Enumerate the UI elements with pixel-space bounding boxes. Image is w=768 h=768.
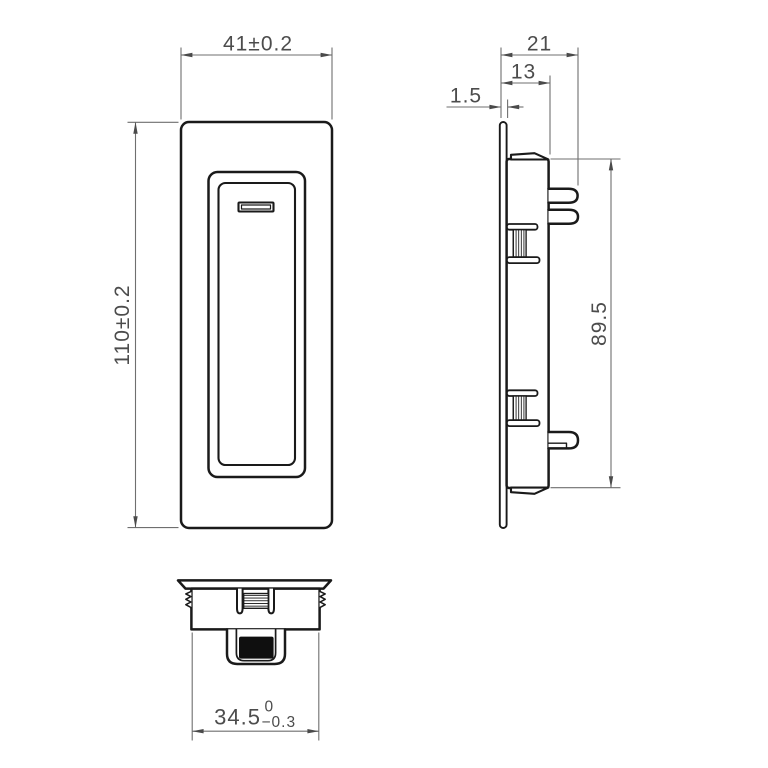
recess-inner-outline	[219, 183, 296, 465]
technical-drawing: 41±0.2 110±0.2 21 13 1.5	[0, 0, 768, 768]
spring-clip-bottom-upper-arm	[507, 390, 538, 396]
dim-overall-depth-label: 21	[527, 33, 552, 56]
spring-clip-bottom-ribs	[513, 396, 526, 420]
channel-left	[237, 589, 243, 614]
dim-front-width: 41±0.2	[181, 33, 332, 120]
dim-body-height-label: 89.5	[588, 301, 611, 346]
snap-hook-bottom-outline	[549, 432, 579, 448]
spring-clip-top-upper-arm	[507, 224, 538, 230]
dim-front-height: 110±0.2	[111, 122, 179, 527]
dim-faceplate-thickness: 1.5	[447, 85, 524, 119]
body-side	[507, 159, 549, 488]
latch-slot-outer	[239, 203, 274, 212]
spring-clip-top-lower-arm	[507, 257, 540, 263]
channel-right	[268, 589, 274, 614]
grip-ribs	[244, 594, 269, 609]
front-view	[181, 122, 332, 528]
serration-left	[186, 591, 192, 610]
dim-body-depth-label: 13	[511, 61, 536, 84]
bottom-view	[178, 580, 331, 664]
top-boss	[511, 153, 548, 159]
spring-clip-top-ribs	[513, 230, 526, 257]
dim-bottom-width-label: 34.5	[214, 705, 261, 730]
bottom-boss	[511, 488, 548, 494]
dim-front-height-label: 110±0.2	[111, 284, 134, 365]
dim-faceplate-thickness-label: 1.5	[450, 85, 482, 108]
dim-front-width-label: 41±0.2	[223, 33, 293, 56]
snap-hook-bottom	[549, 432, 579, 448]
serration-right	[320, 591, 326, 610]
side-view	[500, 122, 578, 528]
spring-clip-bottom-lower-arm	[507, 420, 540, 426]
dim-bottom-width-tol-lower: −0.3	[262, 714, 297, 731]
drawing-canvas: 41±0.2 110±0.2 21 13 1.5	[0, 0, 768, 768]
snap-hook-top-upper	[549, 189, 578, 203]
latch-slot	[239, 203, 274, 212]
latch-pocket-fill	[239, 637, 274, 659]
snap-hook-top-lower	[549, 210, 579, 224]
dim-bottom-width-tol-upper: 0	[265, 699, 275, 716]
